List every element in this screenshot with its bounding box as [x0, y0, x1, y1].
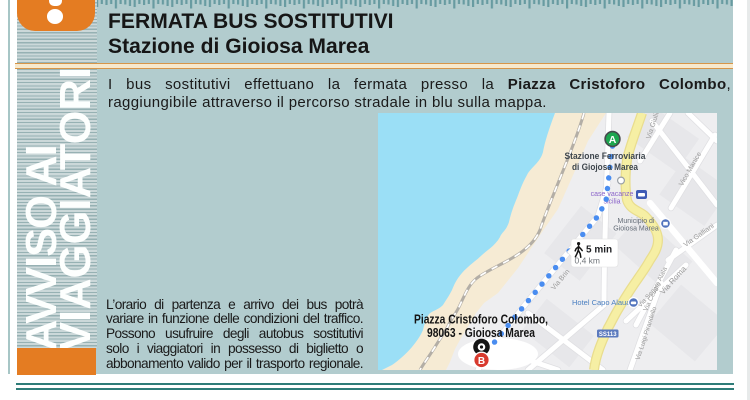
svg-text:98063 - Gioiosa Marea: 98063 - Gioiosa Marea [427, 325, 536, 340]
svg-text:5 min: 5 min [586, 245, 612, 256]
svg-text:Gioiosa Marea: Gioiosa Marea [613, 226, 659, 233]
svg-text:Stazione Ferroviaria: Stazione Ferroviaria [565, 151, 647, 162]
svg-text:Hotel Capo Alaua: Hotel Capo Alaua [572, 298, 631, 307]
svg-text:A: A [609, 134, 617, 146]
svg-text:case vacanze: case vacanze [591, 191, 634, 198]
svg-text:B: B [478, 356, 485, 367]
svg-text:0,4 km: 0,4 km [575, 256, 601, 266]
svg-text:SS113: SS113 [599, 332, 617, 338]
svg-text:Municipio di: Municipio di [618, 218, 655, 225]
svg-text:di Giojosa Marea: di Giojosa Marea [572, 162, 639, 173]
